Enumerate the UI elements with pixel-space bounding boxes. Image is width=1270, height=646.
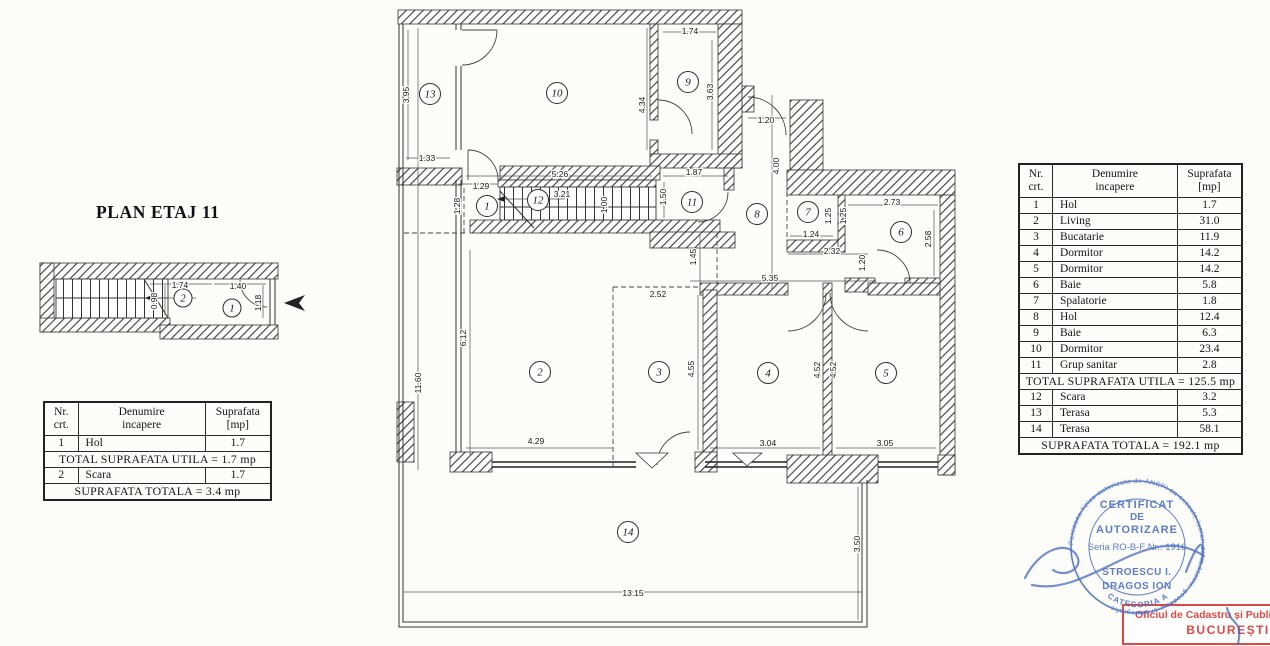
- dimension-label: 1.50: [658, 188, 668, 205]
- main-plan-annotations: 13109112118762345143.951.3311.601.743.63…: [401, 26, 933, 598]
- dimension-label: 1.20: [758, 115, 775, 125]
- dimension-label: 1.33: [419, 153, 436, 163]
- dimension-label: 1.25: [823, 207, 833, 224]
- room-number: 1: [229, 303, 235, 315]
- dimension-label: 2.73: [884, 197, 901, 207]
- dimension-label: 2.32: [824, 246, 841, 256]
- dimension-label: 4.52: [828, 361, 838, 378]
- room-number: 7: [805, 207, 811, 219]
- stamp-line-certificat: CERTIFICAT: [1100, 499, 1175, 511]
- stamp-name-1: STROESCU I.: [1102, 567, 1171, 578]
- dimension-label: 6.12: [458, 329, 468, 346]
- north-arrow: [284, 295, 305, 311]
- room-number: 5: [883, 368, 889, 380]
- dimension-label: 5.35: [762, 273, 779, 283]
- dimension-label: 1.24: [803, 229, 820, 239]
- room-number: 12: [533, 195, 545, 207]
- room-number: 13: [425, 89, 437, 101]
- room-number: 10: [552, 88, 564, 100]
- dimension-label: 4.52: [812, 361, 822, 378]
- dimension-label: 3.05: [877, 438, 894, 448]
- stamp-line-de: DE: [1130, 512, 1144, 523]
- dimension-label: 4.34: [637, 96, 647, 113]
- dimension-label: 2.52: [650, 289, 667, 299]
- stamp-line-autorizare: AUTORIZARE: [1096, 524, 1178, 536]
- dimension-label: 1.00: [599, 196, 609, 213]
- scanned-floor-plan-page: PLAN ETAJ 11 Nr.crt.DenumireincapereSupr…: [0, 0, 1270, 646]
- floorplan-drawing: 13109112118762345143.951.3311.601.743.63…: [0, 0, 1270, 646]
- room-number: 1: [484, 201, 490, 213]
- dimension-label: 3.21: [554, 189, 571, 199]
- room-number: 11: [687, 197, 697, 209]
- room-number: 14: [623, 527, 635, 539]
- blue-authorization-stamp: Persoana fizica autorizata de ANCPI sa e…: [1025, 478, 1239, 644]
- stamp-serial: Seria RO-B-F Nr.: 1916: [1088, 542, 1187, 553]
- dimension-label: 1.18: [253, 294, 263, 311]
- stamp-name-2: DRAGOS ION: [1102, 581, 1171, 592]
- dimension-label: 1.25: [838, 207, 848, 224]
- room-number: 3: [655, 367, 662, 379]
- dimension-label: 4.00: [771, 157, 781, 174]
- room-number: 9: [685, 77, 691, 89]
- dimension-label: 1.28: [452, 197, 462, 214]
- dimension-label: 1.45: [688, 248, 698, 265]
- room-number: 6: [898, 227, 904, 239]
- dimension-label: 5.26: [552, 169, 569, 179]
- room-number: 8: [754, 209, 760, 221]
- dimension-label: 1.29: [473, 181, 490, 191]
- room-number: 2: [180, 293, 186, 305]
- main-plan-walls: [397, 10, 955, 483]
- dimension-label: 3.63: [705, 83, 715, 100]
- dimension-label: 1.74: [172, 280, 189, 290]
- dimension-label: 11.60: [413, 372, 423, 393]
- dimension-label: 13.15: [622, 588, 644, 598]
- dimension-label: 1.74: [682, 26, 699, 36]
- dimension-label: 4.55: [686, 360, 696, 377]
- dimension-label: 4.29: [528, 436, 545, 446]
- room-number: 4: [765, 368, 771, 380]
- dimension-lines: [404, 28, 938, 620]
- dimension-label: 1.40: [230, 281, 247, 291]
- dimension-label: 1.87: [686, 167, 703, 177]
- dimension-label: 0.98: [149, 292, 159, 309]
- dimension-label: 3.95: [401, 86, 411, 103]
- dimension-label: 1.20: [857, 254, 867, 271]
- dimension-label: 2.58: [923, 230, 933, 247]
- small-plan: [40, 263, 305, 339]
- dimension-label: 3.50: [852, 535, 862, 552]
- room-number: 2: [537, 367, 543, 379]
- dimension-label: 3.04: [760, 438, 777, 448]
